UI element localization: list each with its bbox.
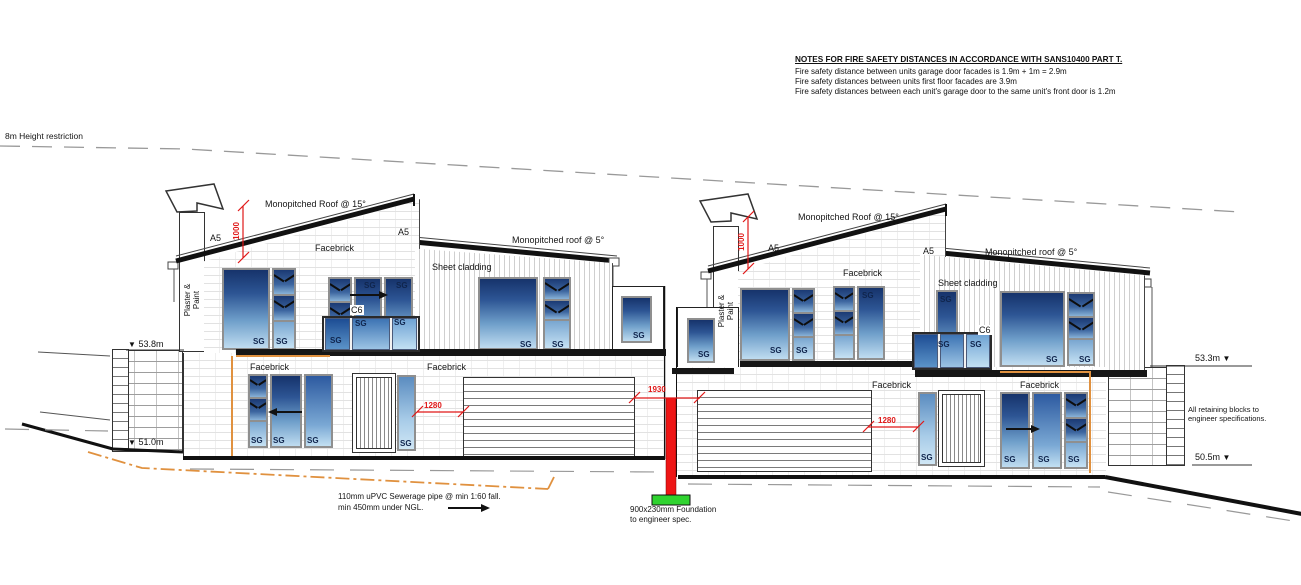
dim-1280: 1280 — [878, 416, 896, 426]
window — [740, 288, 790, 361]
level-marker-left-lower: ▼ 51.0m — [128, 437, 163, 447]
glazing-label: SG — [330, 336, 342, 345]
timber-line-horizontal — [236, 355, 330, 357]
left-retaining-block-column — [112, 349, 129, 452]
balustrade-glass — [914, 334, 938, 368]
glazing-label: SG — [307, 436, 319, 445]
roof-ref-a5: A5 — [398, 227, 409, 237]
top-hung-sash — [274, 270, 294, 296]
glazing-label: SG — [251, 436, 263, 445]
top-hung-sash — [545, 279, 569, 301]
note-line: Fire safety distance between units garag… — [795, 67, 1225, 77]
glazing-label: SG — [396, 281, 408, 290]
level-marker-icon: ▼ — [1223, 354, 1231, 363]
level-value: 51.0m — [138, 437, 163, 447]
facebrick-label: Facebrick — [315, 243, 354, 253]
level-value: 53.3m — [1195, 353, 1220, 363]
note-line: Fire safety distances between each unit'… — [795, 87, 1225, 97]
dim-1000: 1000 — [232, 216, 242, 246]
top-hung-sash — [250, 399, 266, 422]
glazing-label: SG — [273, 436, 285, 445]
top-hung-sash — [274, 296, 294, 322]
sewer-flow-arrow — [448, 507, 482, 509]
plaster-paint-label: Plaster & Paint — [183, 277, 201, 323]
top-hung-sash — [1069, 318, 1093, 340]
top-hung-sash — [794, 290, 813, 314]
dim-1000: 1000 — [737, 227, 747, 257]
right-garage-door — [697, 390, 872, 472]
glazing-label: SG — [1004, 455, 1016, 464]
level-value: 50.5m — [1195, 452, 1220, 462]
glazing-label: SG — [364, 281, 376, 290]
level-marker-icon: ▼ — [128, 340, 136, 349]
glazing-label: SG — [862, 291, 874, 300]
facebrick-label: Facebrick — [843, 268, 882, 278]
fixed-pane — [835, 336, 853, 358]
top-hung-sash — [545, 301, 569, 321]
roof-ref-a5: A5 — [210, 233, 221, 243]
glazing-label: SG — [552, 340, 564, 349]
glazing-label: SG — [633, 331, 645, 340]
dim-1280: 1280 — [424, 401, 442, 411]
slide-direction-arrow — [350, 294, 380, 296]
plaster-paint-label: Plaster & Paint — [717, 288, 735, 334]
glazing-label: SG — [698, 350, 710, 359]
right-entry-door — [942, 394, 981, 463]
timber-line-vertical — [1089, 372, 1091, 473]
dim-1930: 1930 — [648, 385, 666, 395]
facebrick-label: Facebrick — [872, 380, 911, 390]
sheet-cladding-label: Sheet cladding — [432, 262, 492, 272]
height-restriction-label: 8m Height restriction — [5, 131, 83, 141]
slide-direction-arrow — [1006, 428, 1032, 430]
sheet-cladding-label: Sheet cladding — [938, 278, 998, 288]
level-marker-right-lower: 50.5m ▼ — [1195, 452, 1230, 462]
notes-heading: NOTES FOR FIRE SAFETY DISTANCES IN ACCOR… — [795, 55, 1225, 65]
top-hung-sash — [1066, 419, 1086, 443]
facebrick-label: Facebrick — [427, 362, 466, 372]
fire-safety-notes: NOTES FOR FIRE SAFETY DISTANCES IN ACCOR… — [795, 55, 1225, 97]
top-hung-sash — [1066, 394, 1086, 419]
glazing-label: SG — [1079, 355, 1091, 364]
window-ref-c6: C6 — [350, 305, 364, 315]
facebrick-label: Facebrick — [250, 362, 289, 372]
window-opener-stack — [833, 286, 855, 360]
glazing-label: SG — [253, 337, 265, 346]
top-hung-sash — [835, 288, 853, 312]
window-ref-c6: C6 — [978, 325, 992, 335]
retaining-note: All retaining blocks to engineer specifi… — [1188, 405, 1300, 423]
glazing-label: SG — [796, 346, 808, 355]
level-marker-icon: ▼ — [128, 438, 136, 447]
level-value: 53.8m — [138, 339, 163, 349]
roof-ref-a5: A5 — [923, 246, 934, 256]
top-hung-sash — [1069, 294, 1093, 318]
glazing-label: SG — [1038, 455, 1050, 464]
glazing-label: SG — [770, 346, 782, 355]
level-marker-right-upper: 53.3m ▼ — [1195, 353, 1230, 363]
roof5-label-right: Monopitched roof @ 5° — [985, 247, 1077, 257]
roof5-label-left: Monopitched roof @ 5° — [512, 235, 604, 245]
timber-line-horizontal — [1000, 371, 1091, 373]
glazing-label: SG — [355, 319, 367, 328]
facebrick-label: Facebrick — [1020, 380, 1059, 390]
first-floor-slab-right-link — [672, 368, 734, 374]
roof15-label-left: Monopitched Roof @ 15° — [265, 199, 366, 209]
left-entry-door — [356, 377, 392, 449]
top-hung-sash — [835, 312, 853, 336]
roof15-label-right: Monopitched Roof @ 15° — [798, 212, 899, 222]
foundation-note: 900x230mm Foundation to engineer spec. — [630, 505, 716, 525]
glazing-label: SG — [400, 439, 412, 448]
glazing-label: SG — [940, 295, 952, 304]
left-garage-door — [463, 377, 635, 458]
top-hung-sash — [250, 376, 266, 399]
level-marker-icon: ▼ — [1223, 453, 1231, 462]
glazing-label: SG — [938, 340, 950, 349]
elevation-drawing: NOTES FOR FIRE SAFETY DISTANCES IN ACCOR… — [0, 0, 1301, 585]
roof-ref-a5: A5 — [768, 243, 779, 253]
glazing-label: SG — [1046, 355, 1058, 364]
timber-line-vertical — [231, 356, 233, 456]
sewer-note: 110mm uPVC Sewerage pipe @ min 1:60 fall… — [338, 491, 501, 513]
top-hung-sash — [794, 314, 813, 338]
glazing-label: SG — [1068, 455, 1080, 464]
note-line: Fire safety distances between units firs… — [795, 77, 1225, 87]
level-marker-left-upper: ▼ 53.8m — [128, 339, 163, 349]
glazing-label: SG — [276, 337, 288, 346]
glazing-label: SG — [520, 340, 532, 349]
slide-direction-arrow — [276, 411, 302, 413]
glazing-label: SG — [970, 340, 982, 349]
right-retaining-block-column — [1166, 365, 1185, 466]
glazing-label: SG — [394, 318, 406, 327]
glazing-label: SG — [921, 453, 933, 462]
top-hung-sash — [330, 279, 350, 303]
balustrade-glass — [325, 318, 350, 350]
